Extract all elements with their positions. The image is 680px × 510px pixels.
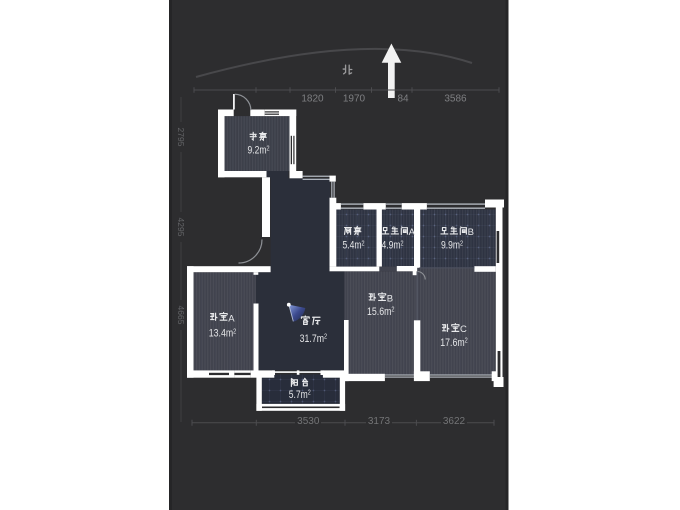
- svg-text:C: C: [460, 324, 467, 335]
- svg-text:B: B: [387, 293, 393, 304]
- svg-text:B: B: [468, 227, 474, 238]
- svg-text:5.4m2: 5.4m2: [343, 240, 365, 252]
- svg-text:2795: 2795: [176, 128, 186, 147]
- svg-text:17.6m2: 17.6m2: [440, 337, 468, 349]
- svg-text:1970: 1970: [343, 93, 366, 104]
- svg-text:4295: 4295: [176, 218, 186, 237]
- svg-text:9.2m2: 9.2m2: [248, 145, 270, 157]
- svg-text:9.9m2: 9.9m2: [441, 240, 463, 252]
- svg-text:A: A: [409, 227, 416, 238]
- svg-text:3622: 3622: [443, 416, 466, 427]
- svg-text:5.7m2: 5.7m2: [289, 389, 311, 401]
- svg-text:3530: 3530: [297, 416, 320, 427]
- svg-text:4.9m2: 4.9m2: [382, 240, 404, 252]
- svg-text:15.6m2: 15.6m2: [367, 306, 395, 318]
- svg-text:3173: 3173: [368, 416, 391, 427]
- svg-text:31.7m2: 31.7m2: [300, 333, 328, 345]
- svg-text:A: A: [228, 313, 235, 324]
- svg-text:3586: 3586: [444, 93, 467, 104]
- svg-text:84: 84: [398, 93, 410, 104]
- svg-text:13.4m2: 13.4m2: [209, 328, 237, 340]
- svg-text:1820: 1820: [301, 93, 324, 104]
- svg-text:4665: 4665: [176, 306, 186, 325]
